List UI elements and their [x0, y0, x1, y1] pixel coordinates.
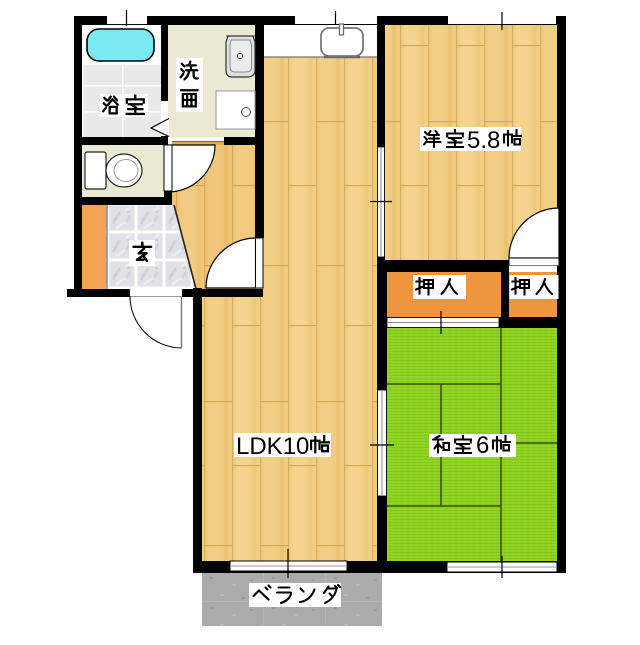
svg-text:5.8: 5.8	[467, 127, 500, 154]
svg-text:6: 6	[476, 432, 489, 459]
svg-text:LDK10: LDK10	[236, 433, 309, 460]
